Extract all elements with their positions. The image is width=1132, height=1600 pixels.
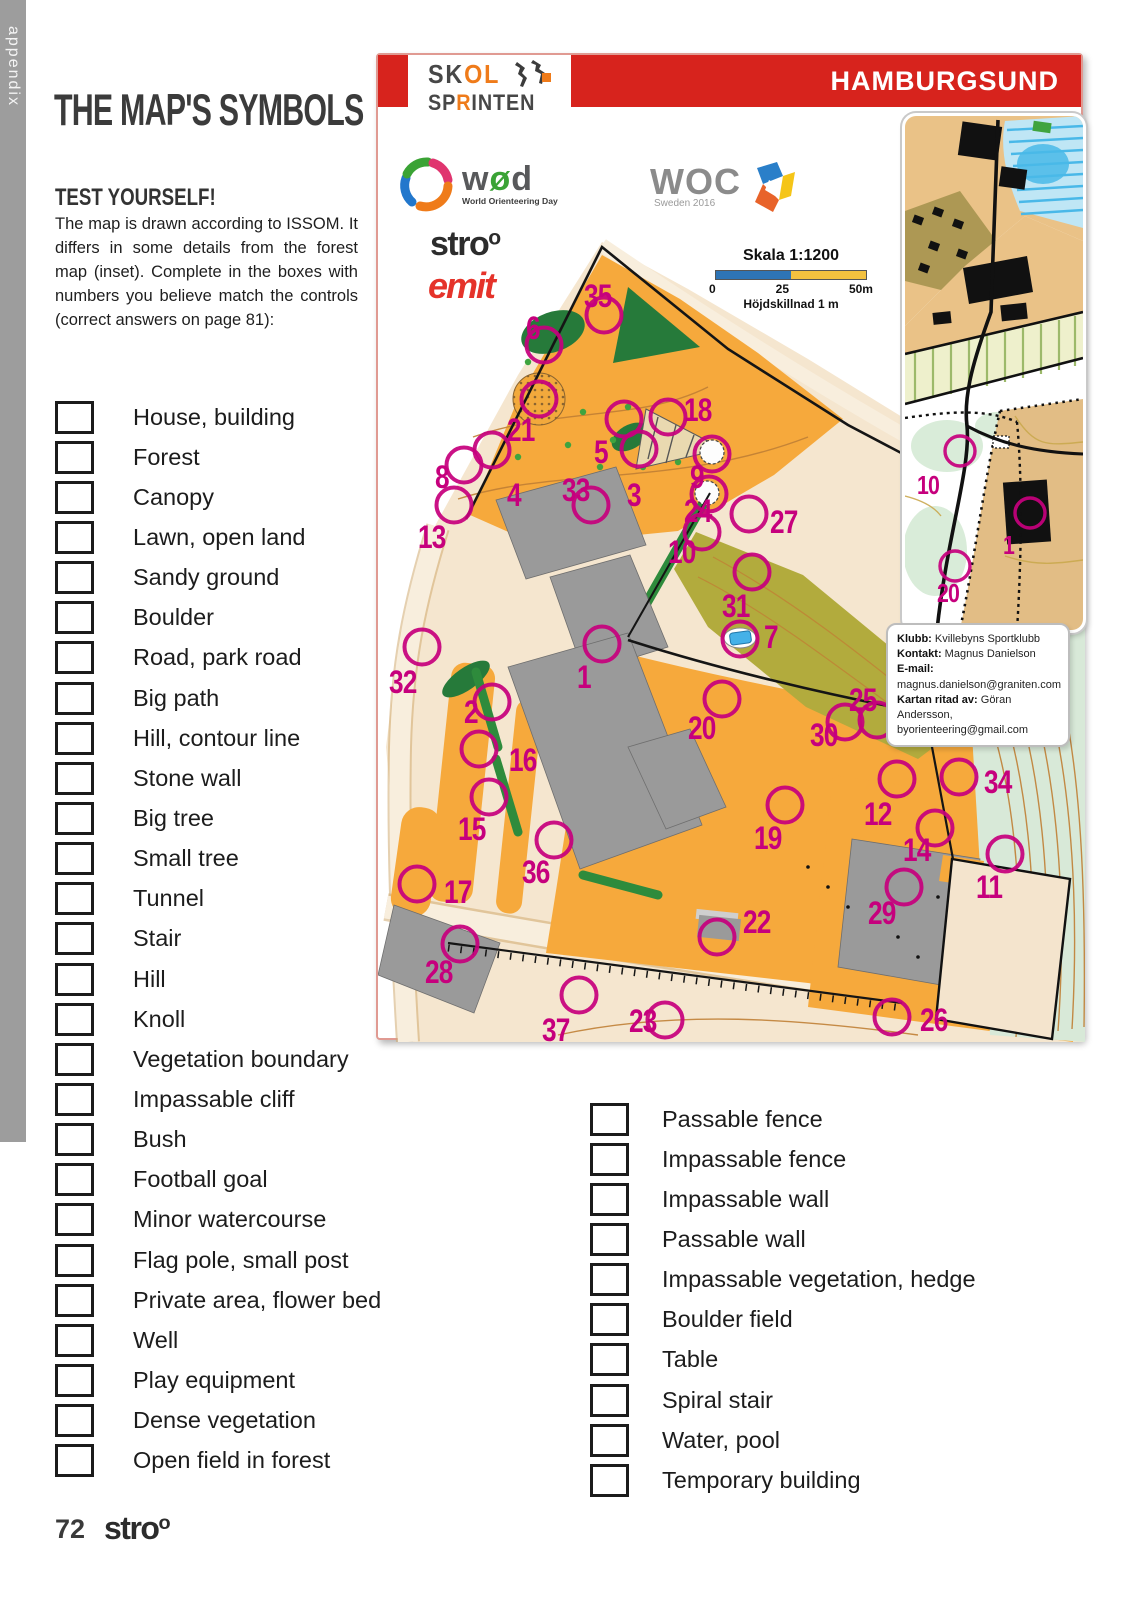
wod-subtext: World Orienteering Day — [462, 196, 558, 206]
symbol-label: Impassable wall — [662, 1186, 829, 1213]
symbol-answer-checkbox[interactable] — [55, 1043, 94, 1076]
symbol-label: Temporary building — [662, 1467, 861, 1494]
fenced-yard — [936, 859, 1070, 1039]
symbol-checklist-left: House, buildingForestCanopyLawn, open la… — [55, 397, 381, 1481]
control-number-22: 22 — [743, 906, 771, 941]
map-panel: HAMBURGSUND — [376, 53, 1083, 1040]
klubb-value: Kvillebyns Sportklubb — [932, 633, 1040, 645]
symbol-row: Boulder field — [590, 1300, 976, 1340]
symbol-label: Hill — [133, 966, 166, 993]
symbol-label: Hill, contour line — [133, 725, 300, 752]
control-number-11: 11 — [976, 871, 1003, 906]
symbol-label: Lawn, open land — [133, 524, 305, 551]
symbol-label: Stair — [133, 925, 181, 952]
symbol-answer-checkbox[interactable] — [590, 1143, 629, 1176]
test-yourself-heading: TEST YOURSELF! — [55, 183, 216, 212]
symbol-row: Stone wall — [55, 758, 381, 798]
symbol-label: Sandy ground — [133, 564, 279, 591]
symbol-row: Forest — [55, 437, 381, 477]
symbol-row: Impassable vegetation, hedge — [590, 1260, 976, 1300]
symbol-answer-checkbox[interactable] — [590, 1103, 629, 1136]
symbol-answer-checkbox[interactable] — [55, 762, 94, 795]
club-info-box: Klubb: Kvillebyns Sportklubb Kontakt: Ma… — [886, 623, 1070, 747]
symbol-label: Well — [133, 1327, 178, 1354]
symbol-label: Impassable fence — [662, 1146, 846, 1173]
pool — [729, 631, 751, 646]
kartan-value2: byorienteering@gmail.com — [897, 723, 1059, 738]
scale-tick-50: 50m — [849, 282, 873, 296]
symbol-answer-checkbox[interactable] — [55, 441, 94, 474]
control-number-31: 31 — [722, 590, 750, 625]
control-number-33: 33 — [562, 474, 590, 509]
page-number: 72 — [55, 1514, 85, 1545]
kartan-label: Kartan ritad av: — [897, 694, 978, 706]
symbol-row: Impassable wall — [590, 1179, 976, 1219]
control-number-4: 4 — [507, 479, 522, 514]
control-number-30: 30 — [810, 719, 838, 754]
stroo-logo: stroo — [430, 225, 501, 264]
symbol-row: Hill — [55, 959, 381, 999]
symbol-row: House, building — [55, 397, 381, 437]
symbol-answer-checkbox[interactable] — [55, 1123, 94, 1156]
symbol-row: Tunnel — [55, 879, 381, 919]
symbol-row: Small tree — [55, 839, 381, 879]
control-number-16: 16 — [509, 744, 537, 779]
symbol-label: Small tree — [133, 845, 239, 872]
symbol-answer-checkbox[interactable] — [55, 682, 94, 715]
symbol-row: Play equipment — [55, 1360, 381, 1400]
symbol-label: Water, pool — [662, 1427, 780, 1454]
symbol-label: Spiral stair — [662, 1387, 773, 1414]
symbol-label: Minor watercourse — [133, 1206, 326, 1233]
control-number-7: 7 — [764, 621, 778, 656]
symbol-row: Vegetation boundary — [55, 1039, 381, 1079]
symbol-label: Boulder field — [662, 1306, 793, 1333]
symbol-row: Water, pool — [590, 1420, 976, 1460]
symbol-row: Dense vegetation — [55, 1401, 381, 1441]
symbol-row: Hill, contour line — [55, 718, 381, 758]
control-number-17: 17 — [444, 876, 472, 911]
contour-note: Höjdskillnad 1 m — [705, 297, 877, 311]
stroo-logo-footer: stroo — [104, 1510, 171, 1547]
symbol-label: Impassable vegetation, hedge — [662, 1266, 976, 1293]
symbol-label: Forest — [133, 444, 200, 471]
symbol-row: Flag pole, small post — [55, 1240, 381, 1280]
symbol-row: Stair — [55, 919, 381, 959]
symbol-label: Private area, flower bed — [133, 1287, 381, 1314]
symbol-row: Impassable cliff — [55, 1079, 381, 1119]
symbol-answer-checkbox[interactable] — [55, 1203, 94, 1236]
symbol-answer-checkbox[interactable] — [55, 842, 94, 875]
symbol-answer-checkbox[interactable] — [590, 1263, 629, 1296]
symbol-answer-checkbox[interactable] — [55, 802, 94, 835]
symbol-row: Spiral stair — [590, 1380, 976, 1420]
symbol-label: Vegetation boundary — [133, 1046, 349, 1073]
symbol-label: Passable wall — [662, 1226, 806, 1253]
wod-swirl-icon — [398, 156, 456, 214]
control-number-13: 13 — [418, 521, 446, 556]
sprinten-text: SPRINTEN — [428, 90, 557, 116]
symbol-answer-checkbox[interactable] — [590, 1424, 629, 1457]
email-label: E-mail: — [897, 663, 934, 675]
appendix-sidebar: appendix — [0, 0, 26, 1142]
intro-paragraph: The map is drawn according to ISSOM. It … — [55, 212, 358, 332]
skol-sprinten-logo: SKOL SPRINTEN — [408, 55, 571, 151]
symbol-answer-checkbox[interactable] — [55, 561, 94, 594]
symbol-answer-checkbox[interactable] — [55, 1284, 94, 1317]
symbol-answer-checkbox[interactable] — [55, 1324, 94, 1357]
symbol-label: Flag pole, small post — [133, 1247, 349, 1274]
appendix-label: appendix — [4, 26, 22, 107]
control-number-1: 1 — [577, 661, 591, 696]
kontakt-label: Kontakt: — [897, 648, 942, 660]
wod-logo: wød World Orienteering Day — [398, 153, 578, 217]
symbol-answer-checkbox[interactable] — [590, 1183, 629, 1216]
scale-title: Skala 1:1200 — [705, 247, 877, 265]
symbol-answer-checkbox[interactable] — [55, 1364, 94, 1397]
control-number-19: 19 — [754, 822, 782, 857]
symbol-label: Stone wall — [133, 765, 241, 792]
symbol-checklist-right: Passable fenceImpassable fenceImpassable… — [590, 1099, 976, 1500]
symbol-label: House, building — [133, 404, 295, 431]
scale-bar — [715, 270, 867, 280]
symbol-answer-checkbox[interactable] — [55, 481, 94, 514]
symbol-label: Boulder — [133, 604, 214, 631]
control-number-37: 37 — [542, 1014, 570, 1042]
symbol-label: Table — [662, 1346, 718, 1373]
symbol-row: Road, park road — [55, 638, 381, 678]
symbol-answer-checkbox[interactable] — [55, 1244, 94, 1277]
symbol-answer-checkbox[interactable] — [55, 1003, 94, 1036]
symbol-answer-checkbox[interactable] — [55, 1083, 94, 1116]
emit-logo: emit — [428, 265, 494, 307]
symbol-label: Open field in forest — [133, 1447, 330, 1474]
symbol-answer-checkbox[interactable] — [55, 521, 94, 554]
symbol-row: Bush — [55, 1120, 381, 1160]
symbol-label: Dense vegetation — [133, 1407, 316, 1434]
symbol-answer-checkbox[interactable] — [590, 1464, 629, 1497]
control-number-20: 20 — [688, 712, 716, 747]
symbol-row: Knoll — [55, 999, 381, 1039]
woc-wordmark: WOC — [650, 167, 741, 198]
control-number-23: 23 — [629, 1005, 657, 1040]
symbol-row: Football goal — [55, 1160, 381, 1200]
symbol-row: Big path — [55, 678, 381, 718]
control-number-28: 28 — [425, 956, 453, 991]
symbol-answer-checkbox[interactable] — [55, 1444, 94, 1477]
scale-block: Skala 1:1200 0 25 50m Höjdskillnad 1 m — [705, 247, 877, 311]
control-number-26: 26 — [920, 1004, 948, 1039]
symbol-row: Open field in forest — [55, 1441, 381, 1481]
symbol-answer-checkbox[interactable] — [55, 601, 94, 634]
symbol-row: Table — [590, 1340, 976, 1380]
symbol-answer-checkbox[interactable] — [590, 1303, 629, 1336]
symbol-label: Canopy — [133, 484, 214, 511]
page-title: THE MAP'S SYMBOLS — [54, 86, 363, 137]
symbol-row: Lawn, open land — [55, 517, 381, 557]
control-number-21: 21 — [507, 414, 535, 449]
symbol-answer-checkbox[interactable] — [55, 922, 94, 955]
symbol-answer-checkbox[interactable] — [55, 401, 94, 434]
symbol-label: Football goal — [133, 1166, 268, 1193]
klubb-label: Klubb: — [897, 633, 932, 645]
symbol-answer-checkbox[interactable] — [55, 963, 94, 996]
control-number-34: 34 — [984, 766, 1013, 801]
control-number-36: 36 — [522, 856, 550, 891]
symbol-answer-checkbox[interactable] — [55, 722, 94, 755]
inset-forest-map: 10120 — [902, 113, 1086, 633]
symbol-label: Big path — [133, 685, 219, 712]
symbol-row: Passable fence — [590, 1099, 976, 1139]
symbol-label: Big tree — [133, 805, 214, 832]
symbol-row: Sandy ground — [55, 558, 381, 598]
symbol-label: Play equipment — [133, 1367, 295, 1394]
symbol-answer-checkbox[interactable] — [55, 641, 94, 674]
control-number-15: 15 — [458, 813, 486, 848]
symbol-label: Road, park road — [133, 644, 302, 671]
control-number-3: 3 — [627, 479, 641, 514]
control-number-2: 2 — [464, 696, 478, 731]
control-number-14: 14 — [903, 834, 932, 869]
control-number-1: 1 — [1003, 531, 1015, 561]
symbol-answer-checkbox[interactable] — [590, 1343, 629, 1376]
control-number-10: 10 — [917, 471, 940, 501]
symbol-row: Boulder — [55, 598, 381, 638]
symbol-label: Knoll — [133, 1006, 185, 1033]
control-number-20: 20 — [937, 579, 960, 609]
symbol-row: Impassable fence — [590, 1139, 976, 1179]
symbol-answer-checkbox[interactable] — [55, 1163, 94, 1196]
region-title: HAMBURGSUND — [831, 66, 1060, 97]
control-number-10: 10 — [668, 536, 696, 571]
symbol-row: Well — [55, 1320, 381, 1360]
symbol-row: Passable wall — [590, 1219, 976, 1259]
control-number-5: 5 — [594, 436, 608, 471]
control-number-32: 32 — [389, 666, 417, 701]
control-number-25: 25 — [849, 684, 877, 719]
email-value: magnus.danielson@graniten.com — [897, 678, 1059, 693]
symbol-row: Temporary building — [590, 1460, 976, 1500]
scale-tick-0: 0 — [709, 282, 716, 296]
symbol-answer-checkbox[interactable] — [55, 882, 94, 915]
control-number-18: 18 — [684, 394, 712, 429]
control-number-27: 27 — [770, 506, 798, 541]
symbol-answer-checkbox[interactable] — [590, 1384, 629, 1417]
symbol-label: Tunnel — [133, 885, 204, 912]
symbol-row: Private area, flower bed — [55, 1280, 381, 1320]
symbol-row: Big tree — [55, 798, 381, 838]
control-number-12: 12 — [864, 798, 892, 833]
symbol-label: Passable fence — [662, 1106, 823, 1133]
skol-text: SKOL — [428, 59, 557, 90]
control-number-35: 35 — [584, 280, 612, 315]
control-number-24: 24 — [684, 495, 713, 530]
symbol-answer-checkbox[interactable] — [590, 1223, 629, 1256]
symbol-row: Minor watercourse — [55, 1200, 381, 1240]
wod-wordmark: wød — [462, 164, 558, 195]
symbol-label: Impassable cliff — [133, 1086, 295, 1113]
symbol-row: Canopy — [55, 477, 381, 517]
woc-logo: WOC Sweden 2016 — [650, 157, 800, 219]
kontakt-value: Magnus Danielson — [942, 648, 1036, 660]
symbol-answer-checkbox[interactable] — [55, 1404, 94, 1437]
control-number-6: 6 — [526, 312, 540, 347]
symbol-label: Bush — [133, 1126, 187, 1153]
woc-emblem-icon — [749, 162, 797, 214]
scale-tick-25: 25 — [776, 282, 789, 296]
control-number-29: 29 — [868, 897, 896, 932]
